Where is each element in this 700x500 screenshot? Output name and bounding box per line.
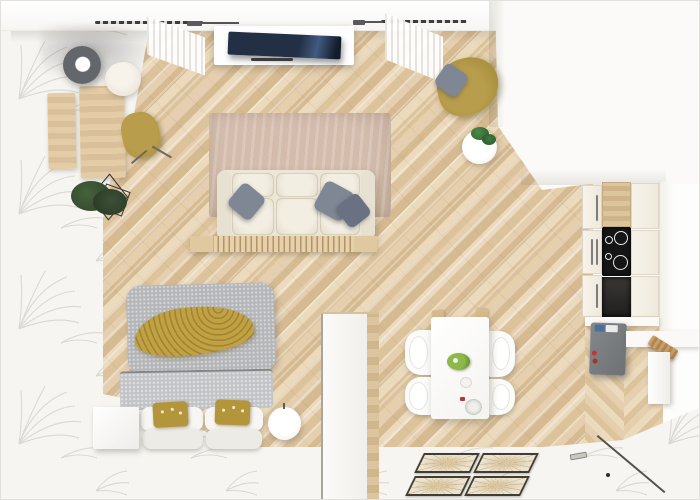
dining-chair-right-1 (487, 331, 515, 377)
window-frame-right (353, 20, 365, 25)
red-bottle-2 (592, 358, 597, 363)
chair-seat (409, 382, 428, 410)
pillow-button (232, 406, 235, 409)
dining-chair-right-2 (487, 379, 515, 415)
cabinet-door-left-1 (582, 185, 602, 229)
dining-chair-left-1 (405, 330, 434, 375)
bed-pillow-mustard-1 (152, 401, 188, 428)
deco-tile-2 (473, 453, 539, 473)
cabinet-handle (596, 195, 599, 221)
pouf-leg (283, 403, 285, 409)
pillow-button (171, 408, 174, 411)
corner-shadow (41, 25, 161, 85)
chair-seat (492, 337, 510, 370)
cabinet-side-panel (659, 181, 673, 331)
pillow-button (161, 410, 164, 413)
kitchen-wood-counter (602, 182, 631, 227)
door-stop (606, 473, 610, 477)
oven-niche (602, 277, 631, 317)
tall-gray-cabinet (589, 322, 627, 375)
slatted-coffee-bench (190, 236, 377, 252)
bed-pillow-white-3 (143, 429, 203, 449)
partition-wardrobe (321, 314, 368, 500)
tv-soundbar (251, 58, 293, 61)
pouf (268, 407, 301, 440)
deco-tile-3 (405, 476, 471, 496)
cabinet-handle2 (591, 239, 594, 265)
bench-cap-right (354, 236, 377, 252)
chair-seat (409, 336, 428, 369)
sofa-seat-cushion-2 (276, 198, 318, 235)
cabinet-door-right-3 (631, 276, 659, 317)
cabinet-door-right-2 (631, 230, 659, 275)
cabinet-door-right-1 (631, 183, 659, 229)
window-frame-left (187, 21, 202, 26)
desk (79, 86, 126, 179)
bench-cap-left (190, 236, 213, 252)
blue-item (595, 325, 605, 332)
cabinet-handle (596, 284, 599, 308)
cabinet-door-left-2 (582, 230, 602, 274)
white-pack (606, 325, 618, 332)
fruit-highlight (453, 358, 458, 363)
cooktop-ring-1 (614, 231, 628, 245)
fruit-plate (447, 353, 470, 370)
bed-pillow-mustard-2 (215, 399, 251, 425)
small-bowl (460, 377, 472, 388)
pillow-button (179, 411, 182, 414)
curtain-rod-left-end (201, 22, 239, 24)
red-utensil (460, 397, 465, 401)
tv-flatscreen (228, 32, 342, 60)
cabinet-handle (596, 239, 599, 265)
partition-wood-edge (367, 314, 379, 500)
cooktop-ring-3 (613, 255, 628, 270)
desk-bench (47, 93, 76, 169)
deco-tile-1 (414, 453, 480, 473)
chair-seat (492, 384, 510, 410)
bed-pillow-white-4 (206, 429, 262, 449)
induction-cooktop (602, 227, 631, 276)
right-wall-edge-shadow (489, 1, 505, 127)
nightstand (93, 407, 139, 449)
cabinet-door-left-3 (582, 275, 602, 317)
cooktop-ring-4 (605, 253, 612, 260)
pillow-button (222, 409, 225, 412)
floor-lamp (63, 46, 101, 84)
desk-plant-foliage2 (93, 189, 127, 215)
dining-chair-left-2 (405, 377, 434, 415)
red-bottle-1 (592, 350, 597, 355)
deco-tile-4 (464, 476, 530, 496)
pillow-button (241, 409, 244, 412)
sofa-back-cushion-2 (276, 173, 318, 197)
white-shelf (648, 352, 670, 404)
monstera-leaf-2 (482, 134, 496, 145)
cooktop-ring-2 (605, 236, 613, 244)
floorplan-render (0, 0, 700, 500)
table-lamp (105, 62, 141, 96)
drinking-glass (465, 399, 482, 415)
